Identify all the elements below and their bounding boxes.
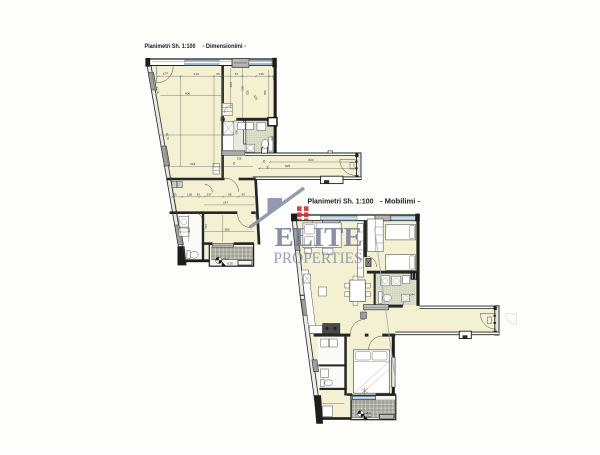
svg-text:146: 146 (259, 72, 264, 76)
svg-text:358: 358 (219, 116, 223, 121)
svg-text:-0.35: -0.35 (227, 262, 233, 266)
svg-text:Planimetri Sh. 1:100: Planimetri Sh. 1:100 (308, 198, 374, 205)
svg-text:69: 69 (173, 193, 177, 197)
svg-text:223: 223 (229, 82, 233, 87)
svg-text:825: 825 (285, 164, 290, 168)
svg-text:406: 406 (185, 91, 190, 95)
svg-text:136: 136 (187, 193, 192, 197)
svg-text:Planimetri Sh. 1:100: Planimetri Sh. 1:100 (145, 43, 196, 50)
svg-text:90: 90 (242, 193, 246, 197)
svg-text:252: 252 (241, 86, 245, 91)
svg-text:322: 322 (263, 90, 267, 95)
svg-text:98: 98 (228, 193, 232, 197)
svg-text:- Mobilimi -: - Mobilimi - (380, 198, 421, 205)
svg-text:337: 337 (207, 193, 212, 197)
svg-text:67: 67 (235, 72, 239, 76)
svg-text:252: 252 (272, 75, 276, 80)
svg-text:823: 823 (309, 158, 314, 162)
svg-text:324: 324 (190, 162, 195, 166)
svg-text:+8.2: +8.2 (365, 411, 371, 415)
svg-text:376: 376 (254, 212, 258, 217)
svg-text:385: 385 (225, 227, 230, 231)
svg-text:202: 202 (235, 130, 239, 135)
svg-text:247: 247 (223, 201, 228, 205)
svg-text:- Dimensionimi -: - Dimensionimi - (203, 43, 247, 50)
svg-text:66: 66 (216, 72, 220, 76)
svg-text:-0.35: -0.35 (365, 415, 371, 419)
svg-text:228: 228 (237, 157, 242, 161)
svg-text:210: 210 (194, 72, 199, 76)
svg-text:322: 322 (246, 90, 250, 95)
svg-text:146: 146 (204, 224, 208, 229)
svg-text:ELITE: ELITE (275, 222, 363, 252)
svg-text:PROPERTIES: PROPERTIES (274, 250, 363, 267)
svg-text:+8.2: +8.2 (223, 257, 229, 261)
svg-text:158: 158 (270, 136, 274, 141)
